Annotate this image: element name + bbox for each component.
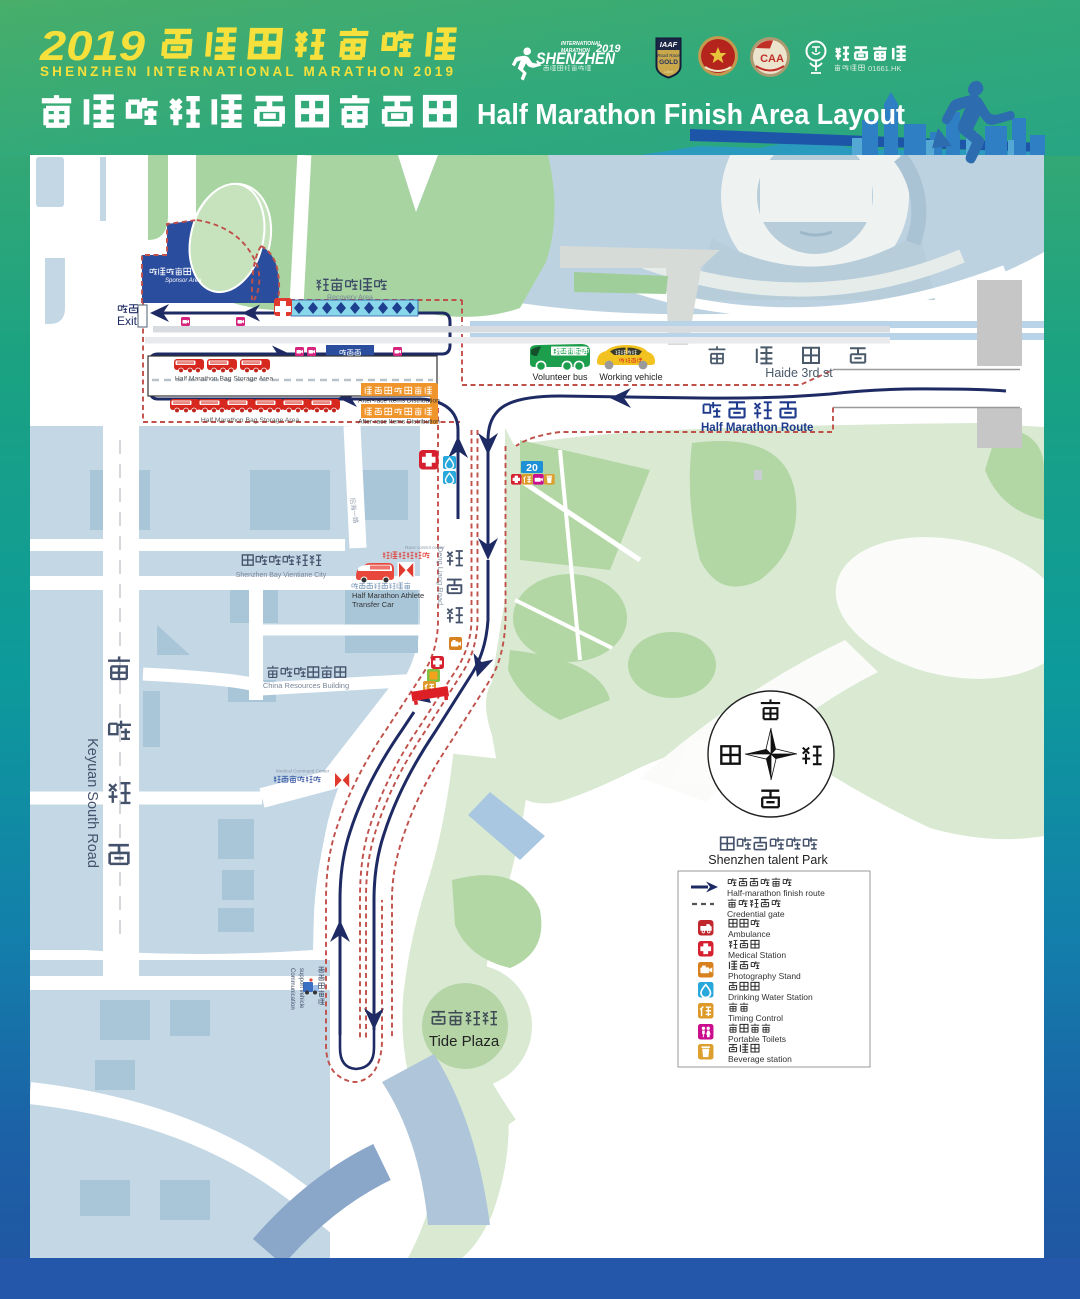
svg-text:20: 20 [526, 462, 538, 474]
svg-text:Exit: Exit [117, 314, 138, 328]
svg-text:Shenzhen Bay Vientiane City: Shenzhen Bay Vientiane City [236, 572, 327, 579]
svg-text:Race control center: Race control center [405, 545, 445, 550]
svg-text:Portable Toilets: Portable Toilets [728, 1034, 786, 1044]
svg-text:Keyuan South Road: Keyuan South Road [84, 738, 100, 868]
svg-text:Road Race: Road Race [657, 53, 680, 58]
svg-text:IAAF: IAAF [660, 40, 678, 49]
svg-text:Half Marathon Bag Storage Area: Half Marathon Bag Storage Area [175, 376, 273, 383]
svg-text:GOLD: GOLD [659, 59, 678, 66]
svg-text:Half Marathon Route: Half Marathon Route [701, 422, 813, 434]
svg-text:After-race Items Distribution: After-race Items Distribution [358, 398, 440, 405]
svg-text:Communication: Communication [289, 968, 295, 1010]
svg-text:Working vehicle: Working vehicle [599, 372, 662, 382]
svg-text:Sponsor Area: Sponsor Area [165, 278, 202, 284]
svg-text:Timing Control: Timing Control [728, 1013, 783, 1023]
svg-text:Medical Command Center: Medical Command Center [276, 769, 330, 774]
svg-text:Recovery Area: Recovery Area [327, 295, 373, 302]
svg-text:Label: Label [664, 69, 674, 74]
svg-text:China Resources Building: China Resources Building [263, 681, 349, 690]
svg-text:01661.HK: 01661.HK [868, 64, 901, 73]
svg-text:2019: 2019 [39, 22, 146, 69]
svg-text:Shenzhen talent Park: Shenzhen talent Park [708, 853, 828, 867]
svg-text:Photography Stand: Photography Stand [728, 971, 801, 981]
svg-text:After-race Items Distribution: After-race Items Distribution [358, 419, 440, 426]
svg-text:Half Marathon Athlete: Half Marathon Athlete [352, 591, 424, 600]
svg-text:Drinking Water Station: Drinking Water Station [728, 992, 813, 1002]
svg-text:Transfer Car: Transfer Car [352, 600, 394, 609]
svg-text:Volunteer bus: Volunteer bus [532, 372, 588, 382]
svg-text:Medical Station: Medical Station [728, 950, 786, 960]
svg-text:support vehicle: support vehicle [298, 968, 304, 1009]
svg-text:Beverage station: Beverage station [728, 1054, 792, 1064]
svg-text:CAA: CAA [760, 53, 784, 65]
svg-text:Haide 3rd st: Haide 3rd st [765, 366, 833, 380]
svg-text:Half Marathon Bag Storage Area: Half Marathon Bag Storage Area [201, 417, 299, 424]
svg-text:Tide Plaza: Tide Plaza [429, 1033, 500, 1050]
svg-text:Ambulance: Ambulance [728, 929, 771, 939]
svg-text:Deng Liang Road: Deng Liang Road [436, 547, 445, 605]
svg-text:Credential gate: Credential gate [727, 909, 785, 919]
svg-text:Half-marathon finish route: Half-marathon finish route [727, 888, 825, 898]
svg-text:Half Marathon Finish Area Layo: Half Marathon Finish Area Layout [477, 99, 905, 131]
